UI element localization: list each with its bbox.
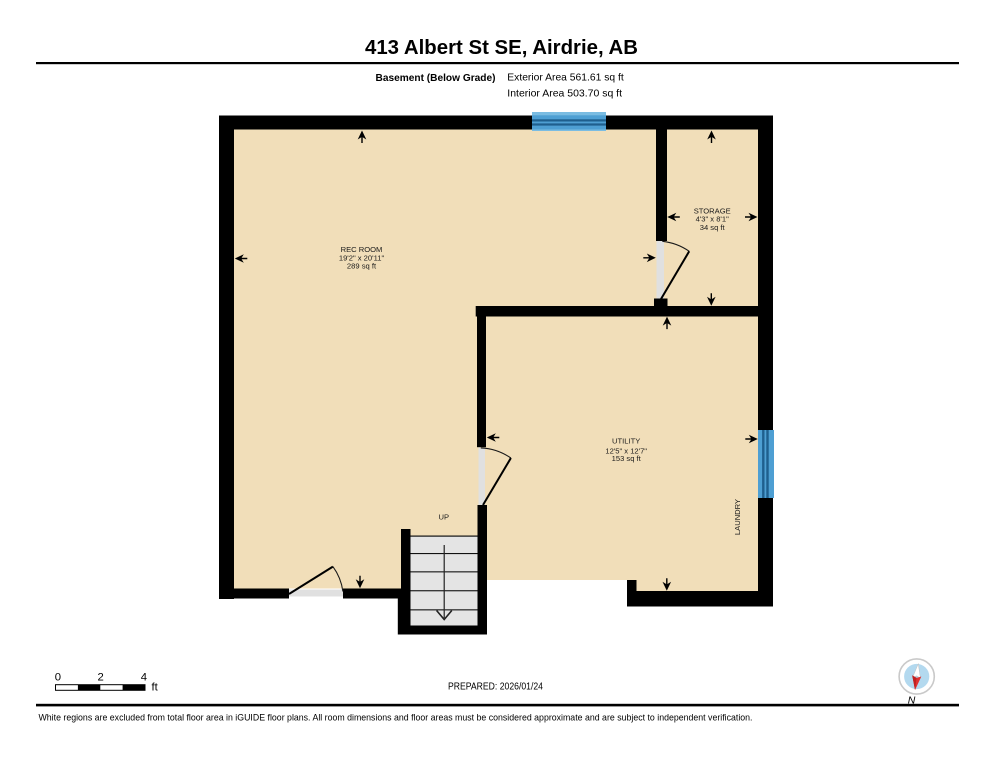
svg-text:LAUNDRY: LAUNDRY	[733, 499, 742, 535]
svg-text:Exterior Area 561.61 sq ft: Exterior Area 561.61 sq ft	[507, 72, 624, 83]
svg-text:289 sq ft: 289 sq ft	[347, 261, 377, 270]
svg-text:2: 2	[97, 672, 103, 684]
svg-text:34 sq ft: 34 sq ft	[700, 223, 726, 232]
svg-text:153 sq ft: 153 sq ft	[612, 454, 642, 463]
svg-text:ft: ft	[152, 682, 159, 694]
svg-text:413 Albert St SE, Airdrie, AB: 413 Albert St SE, Airdrie, AB	[365, 36, 638, 59]
svg-text:PREPARED: 2026/01/24: PREPARED: 2026/01/24	[448, 682, 543, 693]
svg-text:Interior Area 503.70 sq ft: Interior Area 503.70 sq ft	[507, 88, 622, 99]
svg-text:White regions are excluded fro: White regions are excluded from total fl…	[39, 713, 753, 723]
svg-text:Basement (Below Grade): Basement (Below Grade)	[376, 73, 496, 84]
svg-text:0: 0	[55, 672, 61, 684]
svg-text:UTILITY: UTILITY	[612, 437, 640, 446]
svg-text:4: 4	[141, 672, 147, 684]
svg-text:UP: UP	[439, 513, 450, 522]
